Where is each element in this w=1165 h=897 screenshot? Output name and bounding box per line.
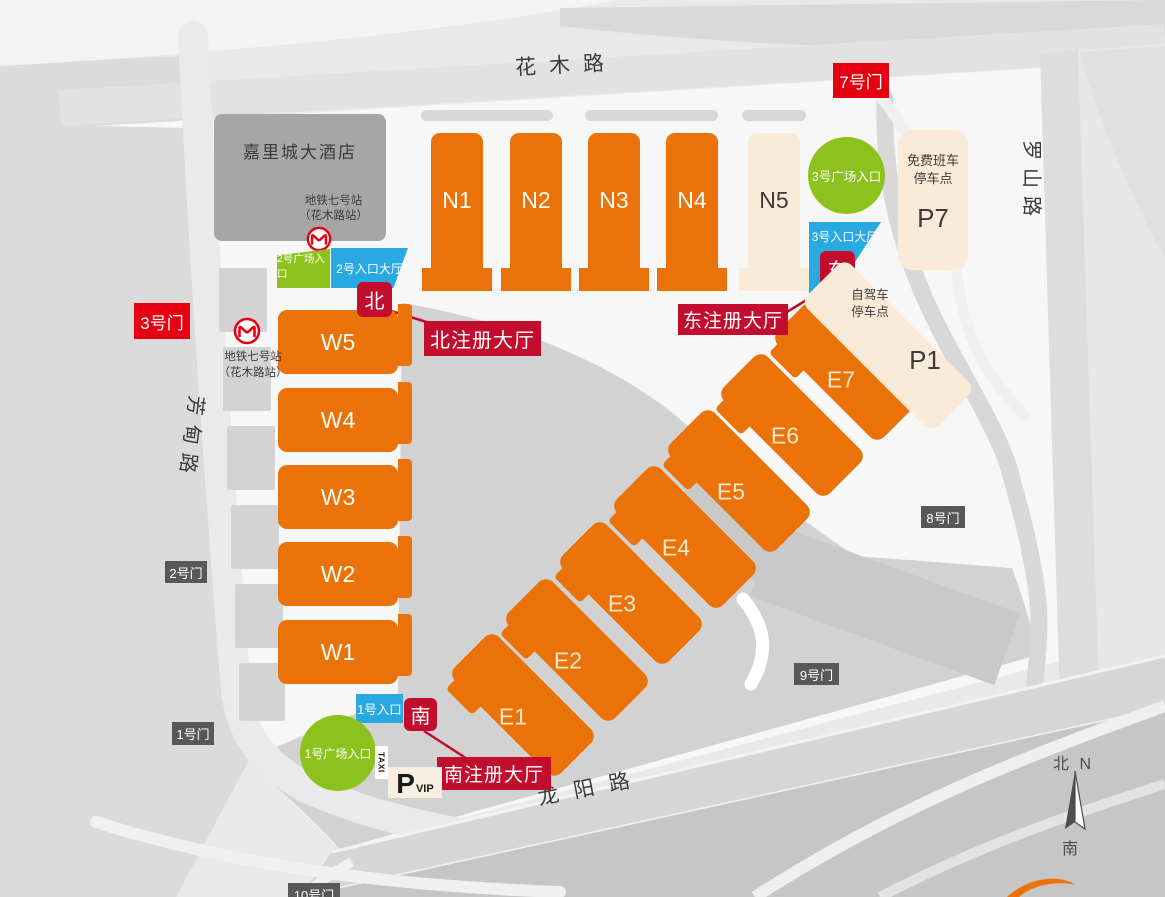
hall-n3: N3 bbox=[588, 133, 640, 268]
hall-n1: N1 bbox=[431, 133, 483, 268]
hall-n2: N2 bbox=[510, 133, 562, 268]
taxi-stand: TAXI bbox=[375, 746, 388, 779]
hall-w4: W4 bbox=[278, 388, 398, 452]
hall-e4-label: E4 bbox=[662, 535, 690, 562]
hall-w2: W2 bbox=[278, 542, 398, 606]
plaza3-entrance: 3号广场入口 bbox=[808, 137, 885, 214]
gate-7: 7号门 bbox=[833, 63, 889, 98]
gate-9: 9号门 bbox=[794, 663, 839, 685]
hall-n5: N5 bbox=[748, 133, 800, 268]
hall-e7-label: E7 bbox=[827, 367, 855, 394]
north-registration-label: 北注册大厅 bbox=[424, 321, 541, 356]
gate-1: 1号门 bbox=[172, 722, 214, 745]
compass-needle-icon bbox=[1060, 769, 1090, 833]
hotel-metro-note: 地铁七号站 （花木路站） bbox=[299, 194, 368, 225]
gate1-entrance: 1号入口 bbox=[356, 694, 403, 723]
metro-station-label: 地铁七号站 （花木路站） bbox=[209, 350, 297, 381]
venue-map: N1 N2 N3 N4 N5 W5 W4 W3 W2 W1 E1 E2 E3 E… bbox=[0, 0, 1165, 897]
gate-2: 2号门 bbox=[165, 561, 207, 583]
south-registration-label: 南注册大厅 bbox=[437, 757, 551, 790]
hall-e6-label: E6 bbox=[771, 423, 799, 450]
canopy-bar bbox=[742, 110, 806, 121]
road-label-huamu: 花木路 bbox=[514, 46, 617, 81]
hotel-name: 嘉里城大酒店 bbox=[214, 114, 386, 163]
p7-label: P7 bbox=[898, 203, 968, 234]
map-background bbox=[0, 0, 1165, 897]
north-registration-badge: 北 bbox=[357, 282, 392, 317]
p1-label: P1 bbox=[903, 345, 947, 376]
compass-south-label: 南 bbox=[1062, 835, 1078, 859]
metro-icon bbox=[233, 317, 261, 345]
metro-icon bbox=[306, 226, 332, 252]
canopy-bar bbox=[585, 110, 718, 121]
p7-note: 免费班车 停车点 bbox=[898, 130, 968, 187]
hall-w3: W3 bbox=[278, 465, 398, 529]
gate-10: 10号门 bbox=[288, 883, 340, 897]
hall-e5-label: E5 bbox=[717, 479, 745, 506]
plaza2-entrance: 2号广场入口 bbox=[277, 249, 330, 288]
hall-e2-label: E2 bbox=[554, 648, 582, 675]
vip-parking: P VIP bbox=[388, 767, 442, 798]
hall-e3-label: E3 bbox=[608, 591, 636, 618]
hall-e1-label: E1 bbox=[499, 704, 527, 731]
p1-note: 自驾车 停车点 bbox=[830, 287, 910, 321]
canopy-bar bbox=[421, 110, 553, 121]
plaza1-entrance: 1号广场入口 bbox=[300, 715, 376, 791]
hall-n4: N4 bbox=[666, 133, 718, 268]
road-label-luoshan: 罗山路 bbox=[1019, 140, 1048, 224]
p7-parking-area: 免费班车 停车点 P7 bbox=[898, 130, 968, 270]
kerry-hotel-block: 嘉里城大酒店 地铁七号站 （花木路站） bbox=[214, 114, 386, 241]
south-registration-badge: 南 bbox=[404, 698, 437, 731]
gate-3: 3号门 bbox=[134, 303, 190, 339]
gate-8: 8号门 bbox=[921, 506, 965, 528]
hall-w1: W1 bbox=[278, 620, 398, 684]
east-registration-label: 东注册大厅 bbox=[678, 304, 788, 335]
